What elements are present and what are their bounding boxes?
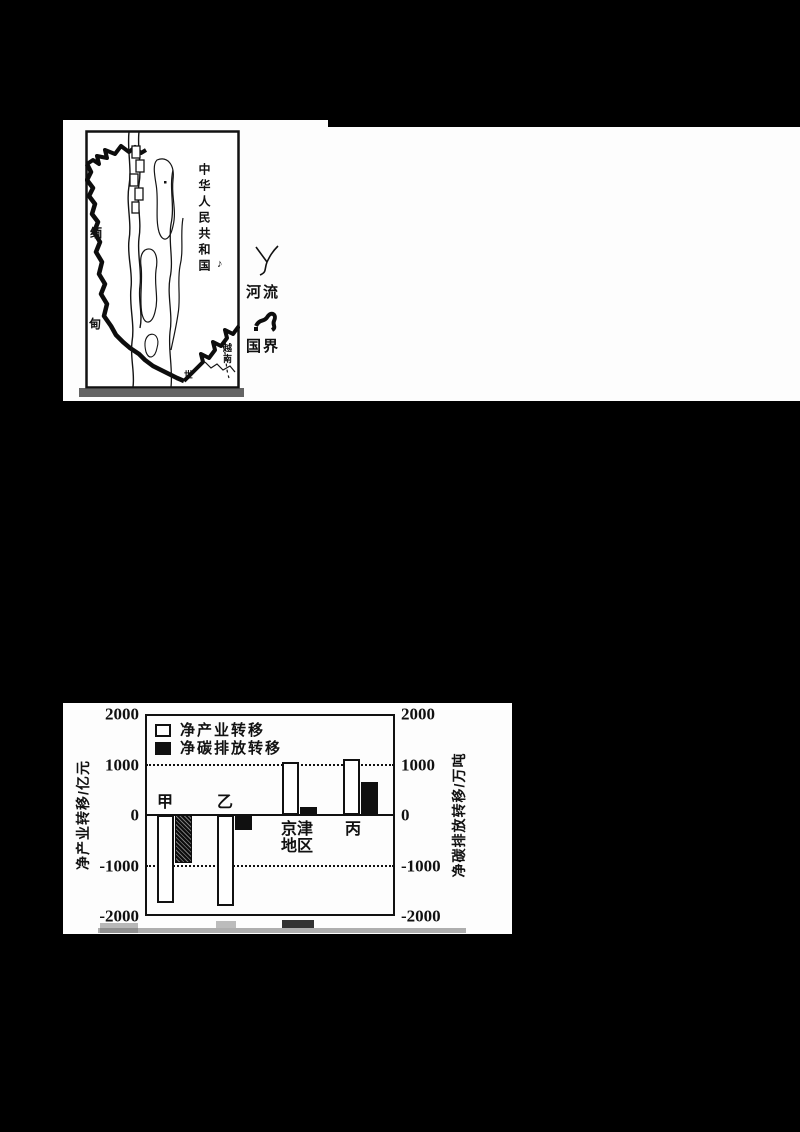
scan-edge-notch [328,120,800,127]
category-label: 丙 [345,821,361,838]
map-label-china: 中华人民共和国 [198,163,210,275]
legend-entry-label: 净产业转移 [180,723,265,738]
river-legend-label: 河流 [246,281,280,302]
legend-entry-label: 净碳排放转移 [180,741,282,756]
chart-bar [361,782,378,815]
left-axis-tick-label: -2000 [87,908,139,925]
right-axis-tick-label: -2000 [401,908,471,925]
right-axis-title: 净碳排放转移/万吨 [449,753,469,878]
river-legend-icon [251,244,283,278]
scanned-exam-page: { "figure_top": { "map": { "country_righ… [0,0,800,1132]
left-axis-tick-label: 0 [87,807,139,824]
right-axis-tick-label: 2000 [401,706,471,723]
category-label: 京津 地区 [281,821,313,855]
legend-entry: 净碳排放转移 [155,741,282,755]
border-legend-icon [252,308,282,334]
scan-smudge [98,928,466,933]
legend-entry: 净产业转移 [155,723,265,737]
map-label-bottom-edge: 世 [184,371,193,380]
map-small-glyph: ♪ [217,259,223,270]
map-dot [164,181,167,184]
map-label-vietnam: 越南 [222,343,231,365]
left-axis-tick-label: -1000 [87,857,139,874]
border-legend-label: 国界 [246,335,280,356]
chart-bar [343,759,360,815]
chart-bar [282,762,299,815]
chart-bar [217,815,234,906]
scan-smudge [79,388,244,397]
chart-bar [157,815,174,903]
left-axis-tick-label: 2000 [87,706,139,723]
category-label: 乙 [217,794,233,811]
legend-swatch-dark [155,742,171,755]
map-label-myanmar-char2: 甸 [89,318,101,330]
chart-bar [175,815,192,863]
scan-smudge [282,920,314,928]
chart-bar [300,807,317,815]
border-region-map: 中华人民共和国 缅 甸 越南 世 ♪ [85,130,240,389]
map-label-myanmar-char1: 缅 [90,227,102,239]
transfer-bar-chart: 200020001000100000-1000-1000-2000-2000甲乙… [63,703,512,934]
dotted-gridline [146,865,394,867]
left-axis-tick-label: 1000 [87,756,139,773]
chart-bar [235,815,252,830]
map-figure-band: 中华人民共和国 缅 甸 越南 世 ♪ 河流 国界 [63,120,800,401]
scan-smudge [216,921,236,928]
legend-swatch-white [155,724,171,737]
left-axis-title: 净产业转移/亿元 [73,760,93,870]
category-label: 甲 [157,794,173,811]
